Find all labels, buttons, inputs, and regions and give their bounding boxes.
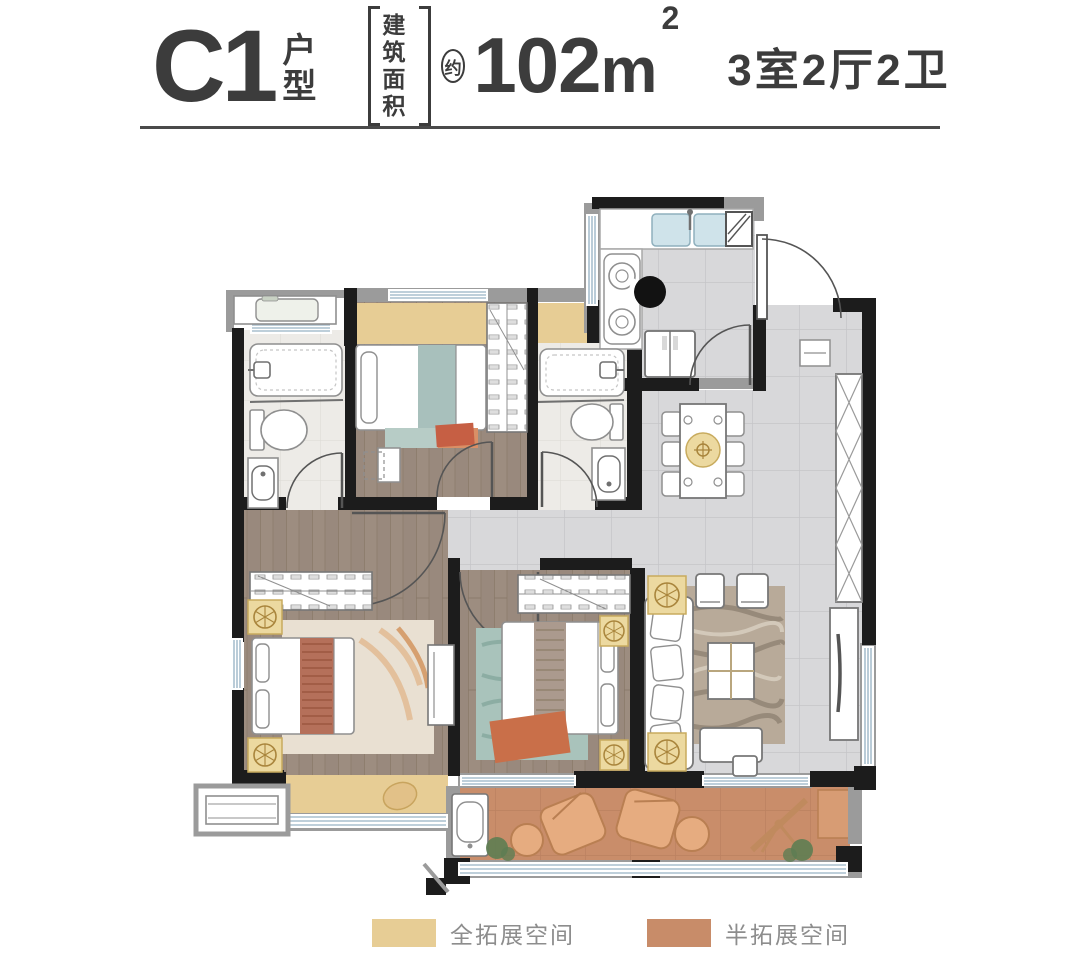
balcony-ac-platform (818, 790, 852, 838)
bathroom-center-toilet (571, 404, 623, 440)
bay-window-master (196, 786, 288, 834)
bathroom-center-vanity (592, 448, 625, 500)
bathroom-left-vanity (248, 458, 278, 508)
bedroom-top-wardrobe (487, 303, 527, 432)
window-master-left (231, 638, 243, 690)
master-side-cabinet (428, 645, 454, 725)
kitchen-sink (652, 209, 728, 246)
window-living-slider (702, 775, 810, 786)
sofa-side-table-top (648, 576, 686, 614)
window-bedroom-top (388, 289, 488, 301)
shoe-cabinet (836, 374, 862, 602)
window-master-expansion (288, 814, 448, 828)
entry-console (800, 340, 830, 366)
bedroom-second-nightstand-bottom (600, 740, 628, 770)
kitchen-pot (634, 276, 666, 308)
dining-area (662, 404, 744, 498)
expansion-bedroom-top (356, 303, 487, 344)
window-kitchen (586, 214, 598, 306)
expansion-master (286, 775, 448, 815)
master-bed (252, 638, 354, 734)
master-nightstand-top (248, 600, 282, 634)
window-bedroom-second-south (460, 775, 576, 786)
bedroom-second-nightstand-top (600, 616, 628, 646)
dining-centerpiece (686, 433, 720, 467)
legend-item-half-expansion: 半拓展空间 (647, 916, 850, 950)
legend-item-full-expansion: 全拓展空间 (372, 916, 575, 950)
bathroom-center-tub (540, 349, 624, 396)
legend: 全拓展空间 半拓展空间 (372, 916, 850, 950)
balcony-washer (452, 794, 488, 856)
bedroom-top-bed (356, 345, 486, 430)
window-balcony (458, 862, 848, 876)
legend-swatch-full (372, 919, 436, 947)
bathroom-left-tub (248, 344, 342, 396)
floor-plan (0, 0, 1080, 953)
sofa-side-table-bottom (648, 733, 686, 771)
bedroom-second-wardrobe (518, 575, 630, 613)
bay-window-top-left (234, 296, 336, 324)
master-nightstand-bottom (248, 738, 282, 772)
kitchen-water-heater (726, 212, 752, 246)
bathroom-left-toilet (250, 410, 307, 450)
kitchen-fridge (645, 331, 695, 377)
legend-label-full: 全拓展空间 (450, 916, 575, 950)
expansion-bathroom-center (538, 303, 587, 343)
legend-label-half: 半拓展空间 (725, 916, 850, 950)
coffee-table (708, 643, 754, 699)
tv-cabinet (830, 608, 858, 740)
legend-swatch-half (647, 919, 711, 947)
window-living-right (862, 646, 874, 766)
